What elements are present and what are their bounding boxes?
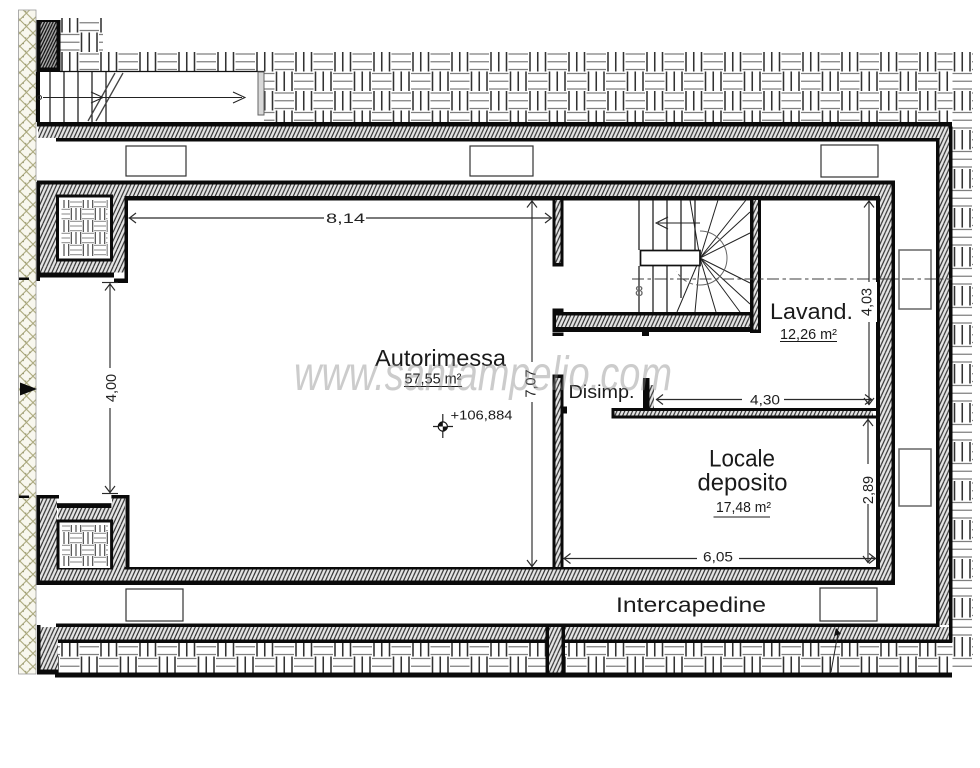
- svg-text:Intercapedine: Intercapedine: [616, 594, 766, 617]
- svg-text:www.santampelio.com: www.santampelio.com: [294, 348, 672, 401]
- svg-text:Locale: Locale: [709, 446, 775, 473]
- svg-text:12,26 m²: 12,26 m²: [780, 327, 837, 343]
- svg-text:4,03: 4,03: [860, 288, 876, 316]
- svg-text:+106,884: +106,884: [451, 408, 513, 423]
- svg-text:8,14: 8,14: [326, 210, 365, 226]
- svg-text:2,89: 2,89: [861, 476, 877, 504]
- svg-text:4,00: 4,00: [104, 374, 120, 402]
- svg-text:4,30: 4,30: [750, 392, 780, 408]
- svg-text:deposito: deposito: [698, 470, 788, 497]
- svg-text:17,48 m²: 17,48 m²: [716, 500, 771, 516]
- svg-text:8: 8: [635, 283, 643, 300]
- svg-text:Lavand.: Lavand.: [770, 299, 853, 324]
- svg-text:6,05: 6,05: [703, 549, 733, 565]
